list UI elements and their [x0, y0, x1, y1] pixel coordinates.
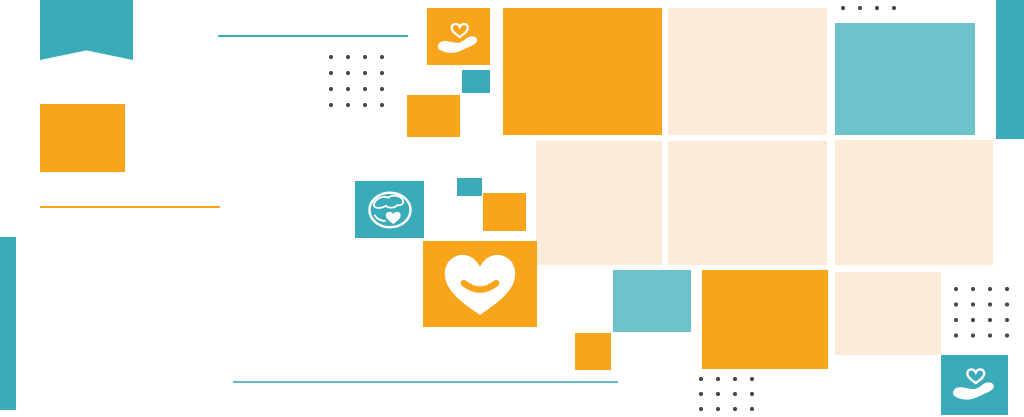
teal-square-medium [613, 270, 691, 332]
orange-square-large [702, 270, 828, 369]
hand-holding-heart-icon [435, 14, 483, 60]
globe-heart-tile [355, 181, 424, 238]
teal-square-large [835, 23, 975, 135]
hand-holding-heart-icon [950, 359, 1000, 407]
orange-square-large [503, 8, 662, 135]
dot-grid [954, 287, 1010, 339]
smiling-heart-tile [423, 241, 537, 327]
teal-square-tiny [457, 178, 482, 196]
teal-edge-bar [0, 237, 16, 410]
cream-square [668, 8, 827, 135]
orange-square-small [575, 333, 611, 370]
divider-line-teal-top [218, 35, 408, 37]
cream-square [835, 272, 941, 355]
divider-line-orange [40, 206, 220, 208]
bookmark-ribbon [40, 0, 133, 60]
decorative-banner [0, 0, 1024, 410]
teal-edge-bar-right [996, 0, 1024, 139]
dot-grid [699, 377, 755, 417]
cream-square [835, 140, 993, 265]
orange-square-small [407, 95, 460, 137]
orange-square [40, 104, 125, 172]
smiling-heart-icon [436, 248, 524, 320]
dot-grid [329, 55, 385, 107]
globe-heart-icon [363, 187, 417, 233]
hand-holding-heart-tile [427, 8, 490, 65]
cream-square [536, 141, 662, 265]
divider-line-teal-bottom [233, 381, 618, 383]
cream-square [668, 141, 827, 265]
orange-square-small [483, 193, 526, 231]
teal-square-small [462, 70, 490, 93]
dot-row [841, 6, 897, 14]
hand-holding-heart-tile [941, 355, 1008, 415]
